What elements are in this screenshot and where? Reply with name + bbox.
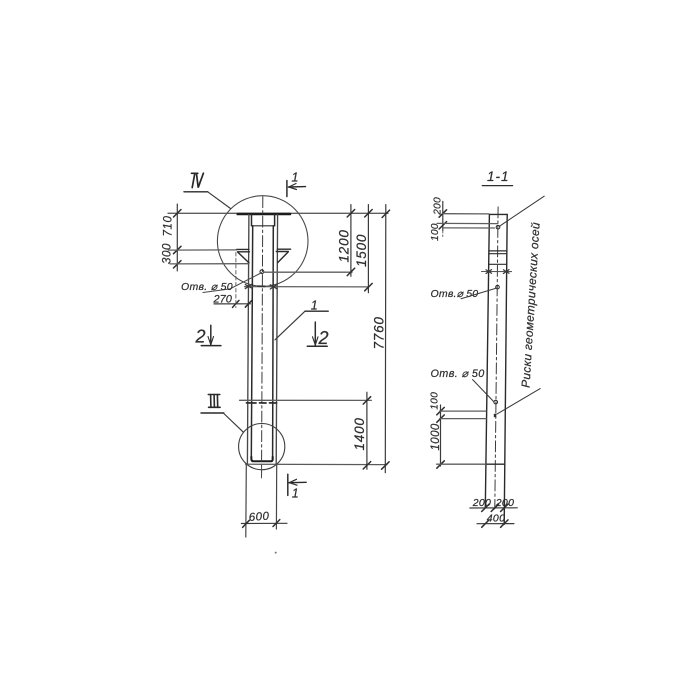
svg-text:200: 200 bbox=[495, 497, 514, 509]
svg-text:300: 300 bbox=[162, 243, 174, 264]
svg-text:100: 100 bbox=[429, 392, 440, 410]
svg-text:100: 100 bbox=[430, 223, 441, 241]
svg-text:1-1: 1-1 bbox=[487, 169, 510, 184]
svg-text:200: 200 bbox=[432, 197, 443, 216]
svg-text:Отв.⌀ 50: Отв.⌀ 50 bbox=[431, 288, 479, 300]
svg-text:400: 400 bbox=[487, 513, 505, 525]
svg-text:1400: 1400 bbox=[352, 417, 367, 450]
svg-text:1500: 1500 bbox=[354, 234, 369, 267]
svg-text:710: 710 bbox=[163, 216, 175, 237]
svg-text:1200: 1200 bbox=[336, 229, 351, 262]
svg-text:7760: 7760 bbox=[371, 316, 386, 349]
svg-text:Отв. ⌀ 50: Отв. ⌀ 50 bbox=[431, 368, 485, 380]
svg-text:Отв. ⌀ 50: Отв. ⌀ 50 bbox=[181, 281, 233, 293]
svg-text:1: 1 bbox=[292, 171, 299, 185]
svg-text:2: 2 bbox=[195, 327, 206, 347]
svg-text:200: 200 bbox=[472, 497, 491, 509]
svg-text:Риски геометрических осей: Риски геометрических осей bbox=[519, 222, 543, 389]
svg-text:1: 1 bbox=[311, 299, 318, 313]
svg-text:1000: 1000 bbox=[430, 423, 442, 450]
svg-text:600: 600 bbox=[248, 511, 270, 524]
svg-text:2: 2 bbox=[318, 328, 329, 348]
svg-text:1: 1 bbox=[292, 487, 299, 501]
